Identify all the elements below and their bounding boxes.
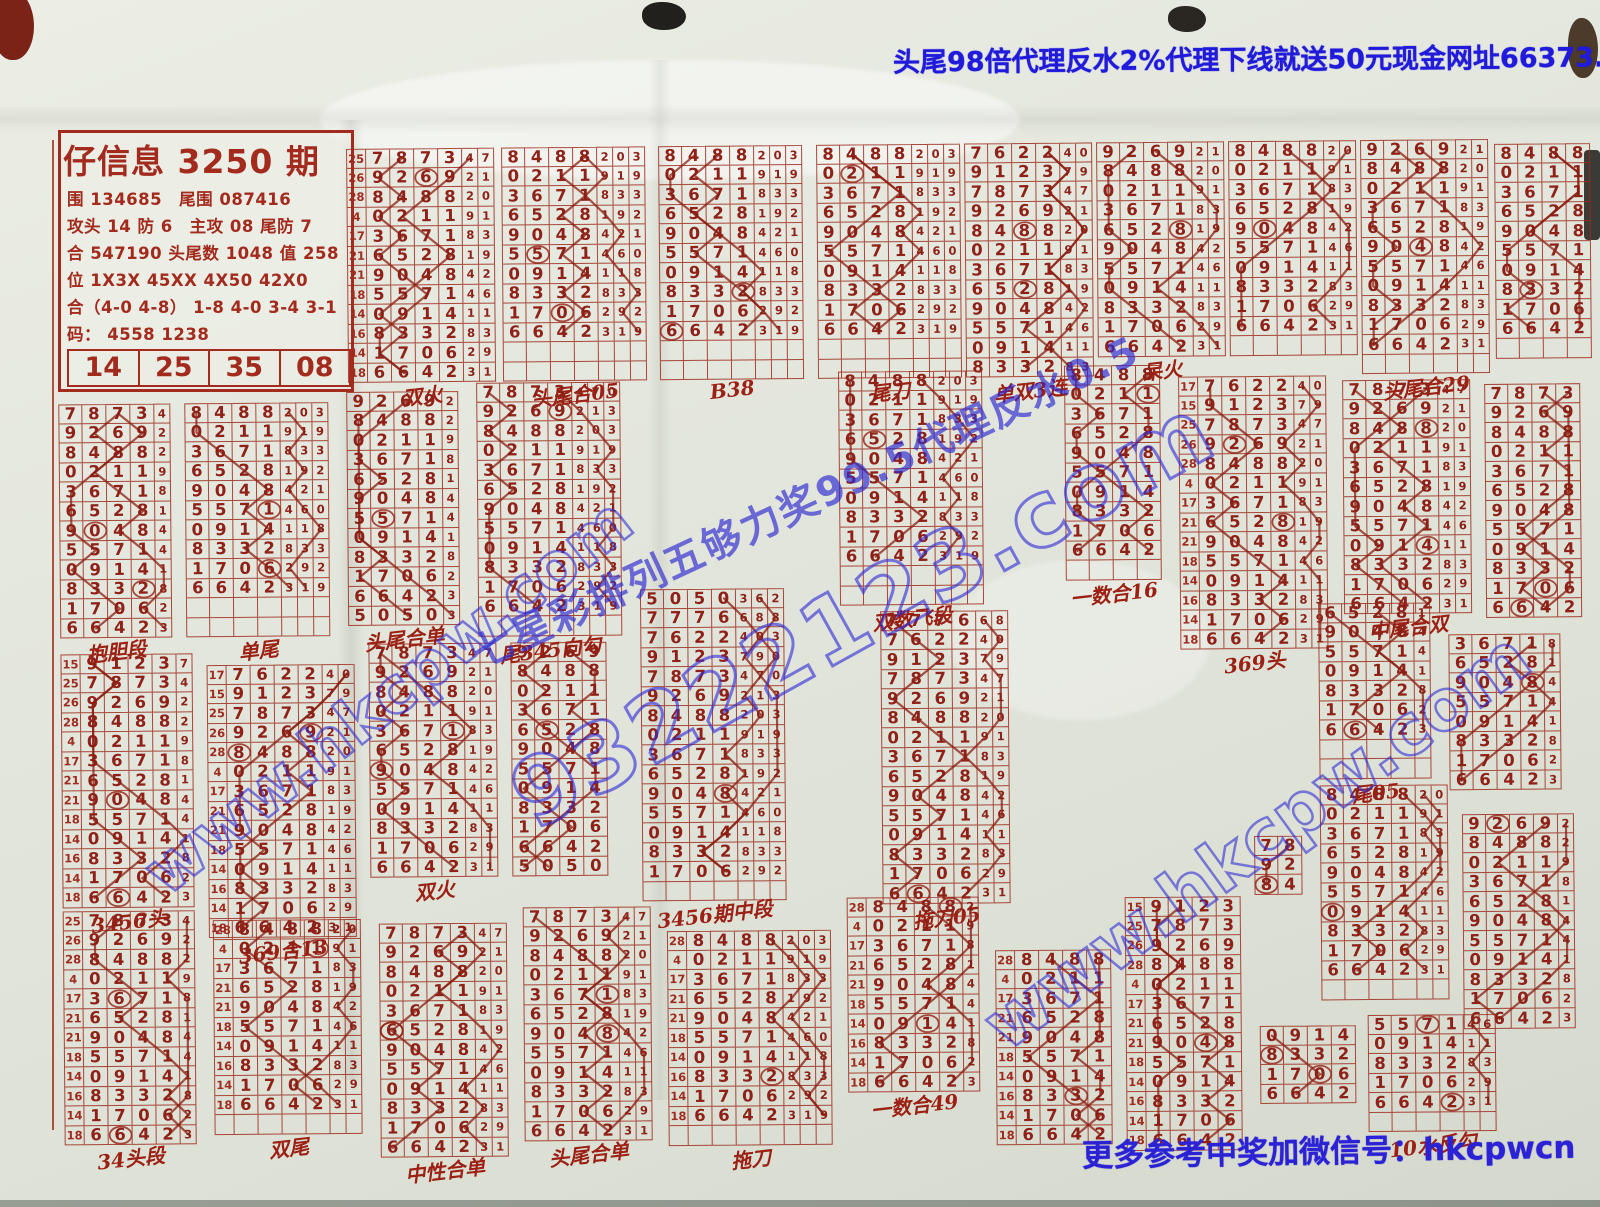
- digit-cell: 2: [768, 588, 784, 608]
- digit-cell: 9: [475, 981, 491, 1001]
- digit-cell: 4: [1533, 500, 1557, 520]
- grid-row: 83328: [1449, 731, 1561, 751]
- digit-cell: 3: [1113, 502, 1137, 522]
- digit-cell: 5: [906, 806, 930, 826]
- digit-cell: 3: [1217, 916, 1241, 936]
- digit-cell: [1433, 979, 1449, 999]
- period-label-cell: 14: [668, 1048, 688, 1068]
- digit-cell: 0: [418, 838, 442, 858]
- digit-cell: [864, 566, 888, 586]
- digit-cell: 3: [636, 1082, 652, 1102]
- digit-cell: 6: [427, 943, 451, 963]
- digit-cell: 5: [108, 1008, 132, 1028]
- grid-row: [840, 565, 984, 586]
- digit-cell: 9: [371, 528, 395, 548]
- digit-cell: 3: [369, 722, 393, 742]
- digit-cell: 6: [381, 1138, 405, 1158]
- period-label-cell: 17: [995, 989, 1015, 1009]
- digit-cell: 1: [1457, 217, 1473, 237]
- grid-row: 15912379: [1178, 395, 1326, 416]
- digit-cell: 5: [1368, 1015, 1392, 1035]
- digit-cell: 8: [1112, 365, 1136, 385]
- digit-cell: 5: [502, 245, 526, 265]
- digit-cell: 3: [629, 185, 645, 205]
- digit-cell: 0: [523, 966, 547, 986]
- digit-cell: 9: [1416, 804, 1432, 824]
- digit-cell: 0: [1485, 442, 1509, 462]
- digit-cell: [258, 598, 282, 618]
- digit-cell: 3: [1209, 200, 1225, 220]
- digit-cell: 7: [915, 936, 939, 956]
- digit-cell: 8: [299, 742, 323, 762]
- digit-cell: 5: [1088, 424, 1112, 444]
- digit-cell: 8: [598, 283, 614, 303]
- period-label-cell: 25: [63, 911, 83, 931]
- digit-cell: 5: [477, 519, 501, 539]
- digit-cell: [866, 339, 890, 359]
- digit-cell: 6: [1169, 994, 1193, 1014]
- grid-row: 904842: [1097, 239, 1225, 260]
- digit-cell: 3: [630, 283, 646, 303]
- digit-cell: 8: [945, 261, 961, 281]
- digit-cell: 3: [589, 460, 605, 480]
- digit-cell: 2: [915, 955, 939, 975]
- digit-cell: 2: [1416, 555, 1440, 575]
- digit-cell: 1: [1473, 275, 1489, 295]
- digit-cell: 0: [664, 589, 688, 609]
- digit-cell: 4: [1518, 144, 1542, 164]
- digit-cell: [842, 339, 866, 359]
- digit-cell: 0: [770, 145, 786, 165]
- grid-row: 762240: [964, 142, 1092, 163]
- digit-cell: 9: [1345, 902, 1369, 922]
- digit-cell: 1: [1542, 163, 1566, 183]
- digit-cell: 3: [799, 969, 815, 989]
- grid-row: 84882: [1462, 833, 1574, 853]
- digit-cell: 4: [324, 820, 340, 840]
- digit-cell: 3: [784, 1106, 800, 1126]
- grid-row: 8488: [1494, 143, 1590, 163]
- digit-cell: 1: [615, 322, 631, 342]
- digit-cell: 1: [1557, 461, 1581, 481]
- digit-cell: 4: [1438, 379, 1454, 399]
- period-label-cell: 21: [64, 1009, 84, 1029]
- digit-cell: 8: [738, 842, 754, 862]
- digit-cell: 3: [367, 227, 391, 247]
- digit-cell: 8: [1416, 823, 1432, 843]
- digit-cell: 0: [1454, 418, 1470, 438]
- digit-cell: 0: [770, 803, 786, 823]
- grid-row: 84882: [346, 410, 458, 430]
- digit-cell: 8: [714, 784, 738, 804]
- digit-cell: 7: [640, 628, 664, 648]
- digit-cell: 7: [1277, 238, 1301, 258]
- period-label-cell: 4: [347, 207, 367, 227]
- grid-row: 0914118: [477, 538, 621, 559]
- digit-cell: 1: [1415, 516, 1439, 536]
- digit-cell: 9: [1463, 912, 1487, 932]
- number-grid-block: 2578734726926921288488204021191173671832…: [346, 148, 496, 383]
- digit-cell: 2: [501, 441, 525, 461]
- digit-cell: 0: [526, 225, 550, 245]
- digit-cell: 5: [1223, 513, 1247, 533]
- digit-cell: 8: [81, 713, 105, 733]
- digit-cell: [314, 597, 330, 617]
- digit-cell: 8: [1319, 681, 1343, 701]
- grid-row: 18557146: [1180, 551, 1328, 572]
- digit-cell: 4: [463, 284, 479, 304]
- digit-cell: 6: [954, 864, 978, 884]
- grid-row: 3671833: [477, 460, 621, 481]
- digit-cell: 2: [440, 323, 464, 343]
- digit-cell: 5: [1509, 481, 1533, 501]
- grid-row: 6642319: [840, 546, 984, 567]
- period-label-cell: 28: [346, 188, 366, 208]
- digit-cell: 4: [1511, 911, 1535, 931]
- digit-cell: 1: [418, 799, 442, 819]
- digit-cell: 3: [108, 579, 132, 599]
- grid-row: 66423: [348, 586, 460, 606]
- digit-cell: 1: [1013, 240, 1037, 260]
- digit-cell: 2: [442, 818, 466, 838]
- digit-cell: 6: [527, 323, 551, 343]
- digit-cell: 6: [1222, 376, 1246, 396]
- digit-cell: [684, 341, 708, 361]
- grid-row: 141706: [996, 1105, 1112, 1126]
- grid-row: 2884882: [63, 949, 195, 970]
- digit-cell: 1: [233, 520, 257, 540]
- digit-cell: 8: [1276, 141, 1300, 161]
- digit-cell: 5: [841, 242, 865, 262]
- grid-row: 848820: [379, 962, 507, 983]
- digit-cell: 5: [1495, 241, 1519, 261]
- digit-cell: 1: [1472, 178, 1488, 198]
- digit-cell: 1: [1368, 1073, 1392, 1093]
- digit-cell: 4: [442, 799, 466, 819]
- digit-cell: 1: [573, 479, 589, 499]
- digit-cell: 3: [769, 686, 785, 706]
- digit-cell: 7: [1198, 376, 1222, 396]
- digit-cell: 8: [324, 781, 340, 801]
- grid-row: 02119: [59, 462, 171, 482]
- digit-cell: 0: [838, 391, 862, 411]
- digit-cell: 7: [880, 631, 904, 651]
- digit-cell: 6: [1332, 1064, 1356, 1084]
- digit-cell: 2: [1391, 720, 1415, 740]
- grid-row: 787347: [964, 181, 1092, 202]
- digit-cell: 7: [1040, 1106, 1064, 1126]
- digit-cell: 1: [714, 803, 738, 823]
- period-label-cell: 28: [207, 743, 227, 763]
- digit-cell: 1: [1535, 930, 1559, 950]
- period-label-cell: 28: [213, 920, 233, 940]
- digit-cell: 6: [867, 956, 891, 976]
- digit-cell: 8: [1254, 875, 1278, 895]
- digit-cell: 6: [492, 1059, 508, 1079]
- digit-cell: 1: [1449, 751, 1473, 771]
- digit-cell: 1: [1222, 396, 1246, 416]
- grid-row: 1417062: [62, 868, 194, 889]
- grid-row: 9048: [1485, 500, 1581, 520]
- digit-cell: 6: [1567, 299, 1591, 319]
- digit-cell: 6: [1121, 200, 1145, 220]
- period-label-cell: 4: [61, 732, 81, 752]
- digit-cell: 2: [816, 1086, 832, 1106]
- period-label-cell: 18: [62, 888, 82, 908]
- digit-cell: 7: [1342, 380, 1366, 400]
- digit-cell: 5: [905, 767, 929, 787]
- digit-cell: [1568, 338, 1592, 358]
- digit-cell: 1: [1260, 1065, 1284, 1085]
- digit-cell: 6: [988, 143, 1012, 163]
- digit-cell: 5: [82, 810, 106, 830]
- digit-cell: 9: [1343, 662, 1367, 682]
- digit-cell: 0: [1534, 578, 1558, 598]
- digit-cell: [1415, 739, 1431, 759]
- digit-cell: 2: [257, 939, 281, 959]
- grid-row: 367183: [369, 721, 497, 742]
- digit-cell: 8: [768, 608, 784, 628]
- digit-cell: 8: [155, 949, 179, 969]
- digit-cell: 0: [916, 1053, 940, 1073]
- digit-cell: 2: [1169, 936, 1193, 956]
- digit-cell: [1319, 740, 1343, 760]
- digit-cell: 6: [368, 363, 392, 383]
- digit-cell: 3: [990, 358, 1014, 378]
- digit-cell: 8: [82, 849, 106, 869]
- digit-cell: 1: [1077, 201, 1093, 221]
- digit-cell: 1: [620, 1004, 636, 1024]
- digit-cell: [1345, 980, 1369, 1000]
- grid-row: 904842: [369, 760, 497, 781]
- digit-cell: 0: [906, 786, 930, 806]
- digit-cell: 1: [574, 244, 598, 264]
- grid-row: 0211919: [184, 422, 328, 443]
- grid-row: 5571460: [477, 518, 621, 539]
- digit-cell: 4: [963, 994, 979, 1014]
- digit-cell: 8: [60, 580, 84, 600]
- digit-cell: 9: [477, 500, 501, 520]
- digit-cell: 1: [281, 461, 297, 481]
- grid-row: 90484: [1463, 911, 1575, 931]
- digit-cell: 9: [130, 423, 154, 443]
- digit-cell: 9: [641, 687, 665, 707]
- digit-cell: 1: [180, 1066, 196, 1086]
- digit-cell: 3: [108, 1086, 132, 1106]
- grid-row: [1319, 739, 1431, 759]
- digit-cell: 8: [185, 540, 209, 560]
- digit-cell: 1: [1064, 1067, 1088, 1087]
- period-label-cell: 21: [208, 802, 228, 822]
- digit-cell: 9: [754, 861, 770, 881]
- grid-row: 1736718: [63, 988, 195, 1009]
- digit-cell: 4: [1332, 1025, 1356, 1045]
- grid-row: 66423: [1319, 719, 1431, 739]
- digit-cell: 4: [1416, 862, 1432, 882]
- digit-cell: 1: [525, 538, 549, 558]
- digit-cell: 7: [1542, 182, 1566, 202]
- digit-cell: 9: [589, 479, 605, 499]
- digit-cell: 2: [297, 480, 313, 500]
- digit-cell: 4: [180, 1047, 196, 1067]
- digit-cell: 4: [1218, 1072, 1242, 1092]
- digit-cell: 0: [753, 705, 769, 725]
- digit-cell: 4: [1393, 902, 1417, 922]
- digit-cell: 0: [887, 527, 911, 547]
- digit-cell: 1: [178, 829, 194, 849]
- digit-cell: 2: [1252, 160, 1276, 180]
- digit-cell: 0: [787, 242, 803, 262]
- digit-cell: 8: [1544, 633, 1560, 653]
- digit-cell: [840, 586, 864, 606]
- grid-row: 55714: [1463, 930, 1575, 950]
- digit-cell: 0: [1311, 453, 1327, 473]
- digit-cell: 9: [929, 202, 945, 222]
- digit-cell: 1: [910, 410, 934, 430]
- digit-cell: 2: [559, 720, 583, 740]
- grid-row: 26926921: [1179, 434, 1327, 455]
- digit-cell: 0: [1392, 575, 1416, 595]
- digit-cell: 7: [428, 1060, 452, 1080]
- period-label-cell: 21: [1126, 1033, 1146, 1053]
- digit-cell: 1: [1362, 315, 1386, 335]
- period-label-cell: 14: [64, 1106, 84, 1126]
- digit-cell: 6: [391, 226, 415, 246]
- digit-cell: 6: [347, 470, 371, 490]
- digit-cell: 9: [510, 642, 534, 662]
- digit-cell: 6: [297, 500, 313, 520]
- digit-cell: 8: [881, 709, 905, 729]
- digit-cell: 6: [689, 686, 713, 706]
- digit-cell: 6: [1312, 551, 1328, 571]
- digit-cell: 3: [1385, 296, 1409, 316]
- digit-cell: 1: [550, 264, 574, 284]
- digit-cell: 7: [1487, 989, 1511, 1009]
- digit-cell: 9: [1284, 1026, 1308, 1046]
- grid-row: 652819: [1229, 199, 1357, 220]
- digit-cell: 3: [81, 752, 105, 772]
- grid-row: 78: [1254, 836, 1302, 856]
- digit-cell: [478, 617, 502, 637]
- digit-cell: 1: [1168, 181, 1192, 201]
- period-label-cell: [669, 1126, 689, 1146]
- digit-cell: 7: [1145, 916, 1169, 936]
- digit-cell: 1: [963, 955, 979, 975]
- digit-cell: 1: [1276, 160, 1300, 180]
- digit-cell: 7: [753, 666, 769, 686]
- digit-cell: 9: [1168, 142, 1192, 162]
- digit-cell: 0: [1096, 181, 1120, 201]
- grid-row: 557146: [1097, 258, 1225, 279]
- digit-cell: 8: [988, 182, 1012, 202]
- digit-cell: 7: [1392, 1073, 1416, 1093]
- digit-cell: 0: [477, 539, 501, 559]
- digit-cell: 1: [977, 766, 993, 786]
- digit-cell: 4: [452, 1079, 476, 1099]
- grid-row: 833283: [1368, 1053, 1496, 1074]
- digit-cell: 1: [1557, 520, 1581, 540]
- grid-row: 14170629: [209, 898, 357, 919]
- digit-cell: 9: [631, 322, 647, 342]
- digit-cell: 0: [1343, 439, 1367, 459]
- digit-cell: 1: [1277, 258, 1301, 278]
- digit-cell: 1: [993, 727, 1009, 747]
- digit-cell: 7: [1510, 872, 1534, 892]
- digit-cell: 2: [934, 371, 950, 391]
- grid-row: 09141: [347, 527, 459, 547]
- grid-row: 091411: [380, 1079, 508, 1100]
- digit-cell: 9: [1198, 396, 1222, 416]
- digit-cell: 2: [1568, 319, 1592, 339]
- digit-cell: [186, 618, 210, 638]
- digit-cell: 0: [1229, 258, 1253, 278]
- digit-cell: 7: [549, 186, 573, 206]
- digit-cell: 2: [1391, 681, 1415, 701]
- digit-cell: 6: [731, 301, 755, 321]
- digit-cell: 5: [1224, 552, 1248, 572]
- grid-row: 652819: [1097, 219, 1225, 240]
- digit-cell: 7: [1247, 493, 1271, 513]
- digit-cell: 8: [596, 1004, 620, 1024]
- digit-cell: 3: [967, 507, 983, 527]
- grid-row: [1230, 335, 1358, 356]
- digit-cell: 3: [1455, 457, 1471, 477]
- grid-row: 170629: [882, 864, 1010, 885]
- digit-cell: 2: [1464, 1073, 1480, 1093]
- digit-cell: 3: [106, 849, 130, 869]
- digit-cell: 6: [1345, 961, 1369, 981]
- digit-cell: 2: [1061, 221, 1077, 241]
- period-label-cell: 18: [1180, 552, 1200, 572]
- digit-cell: 3: [372, 548, 396, 568]
- digit-cell: 3: [451, 923, 475, 943]
- digit-cell: 2: [1295, 454, 1311, 474]
- digit-cell: [1343, 740, 1367, 760]
- period-label-cell: 14: [1126, 1072, 1146, 1092]
- period-label-cell: 28: [63, 950, 83, 970]
- digit-cell: 9: [912, 163, 928, 183]
- digit-cell: 4: [300, 859, 324, 879]
- digit-cell: 8: [1222, 415, 1246, 435]
- digit-cell: 6: [414, 168, 438, 188]
- period-label-cell: 4: [63, 970, 83, 990]
- digit-cell: 8: [583, 739, 607, 759]
- digit-cell: 1: [305, 939, 329, 959]
- digit-cell: 6: [1321, 961, 1345, 981]
- digit-cell: 8: [1271, 512, 1295, 532]
- grid-row: 55714: [347, 508, 459, 528]
- digit-cell: 4: [736, 1008, 760, 1028]
- grid-row: 2692692: [61, 692, 193, 713]
- digit-cell: 5: [863, 430, 887, 450]
- digit-cell: 1: [613, 166, 629, 186]
- digit-cell: 1: [1113, 482, 1137, 502]
- digit-cell: 1: [953, 727, 977, 747]
- digit-cell: 7: [523, 907, 547, 927]
- grid-row: 14170629: [348, 343, 496, 364]
- digit-cell: 8: [1296, 590, 1312, 610]
- digit-cell: 1: [1342, 316, 1358, 336]
- digit-cell: 1: [419, 450, 443, 470]
- digit-cell: 8: [153, 712, 177, 732]
- digit-cell: 1: [935, 429, 951, 449]
- digit-cell: 7: [476, 383, 500, 403]
- digit-cell: 1: [130, 829, 154, 849]
- digit-cell: 7: [887, 469, 911, 489]
- grid-row: 66423: [1450, 770, 1562, 790]
- digit-cell: 8: [1559, 969, 1575, 989]
- digit-cell: 1: [787, 223, 803, 243]
